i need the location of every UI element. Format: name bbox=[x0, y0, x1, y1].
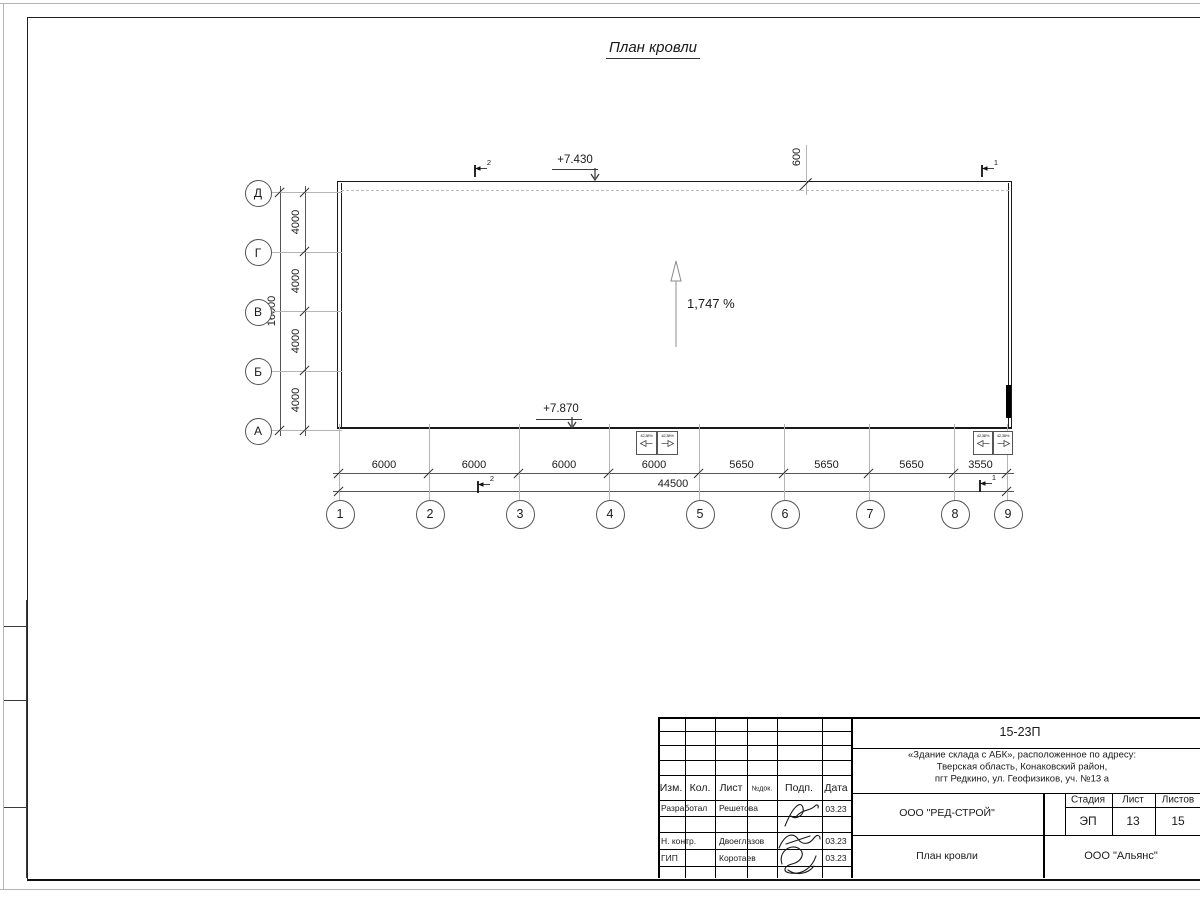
title-block-line bbox=[658, 800, 851, 801]
rev-header-list: Лист bbox=[720, 782, 743, 794]
section-marker: 1 bbox=[976, 476, 996, 494]
dim-label: 6000 bbox=[462, 459, 486, 471]
signature bbox=[774, 842, 820, 876]
title-block-line bbox=[658, 849, 851, 850]
rev-header-izm: Изм. bbox=[660, 782, 683, 794]
slope-label: 1,747 % bbox=[687, 296, 735, 311]
grid-extension-line bbox=[429, 424, 430, 500]
arrow-left-icon bbox=[639, 439, 654, 448]
filing-margin-line bbox=[26, 600, 27, 878]
title-block-line bbox=[851, 717, 853, 878]
title-block-line bbox=[851, 835, 1200, 836]
roof-parapet-left bbox=[341, 183, 342, 427]
stage-header: Стадия bbox=[1071, 795, 1105, 806]
roof-funnel: 42,38% bbox=[636, 431, 657, 455]
title-block-line bbox=[658, 731, 851, 732]
section-marker: 2 bbox=[471, 161, 491, 179]
dim-line-cols bbox=[333, 473, 1014, 474]
grid-extension-line bbox=[270, 371, 342, 372]
dim-label: 6000 bbox=[552, 459, 576, 471]
staff-name: Коротаев bbox=[719, 853, 756, 863]
roof-ladder-mark bbox=[1006, 385, 1011, 418]
roof-dashed-line bbox=[341, 190, 1009, 191]
axis-col-bubble: 1 bbox=[326, 500, 355, 529]
staff-date: 03.23 bbox=[825, 853, 846, 863]
grid-extension-line bbox=[270, 252, 342, 253]
dim-extension-line bbox=[806, 145, 807, 195]
funnel-slope-label: 42,38% bbox=[997, 432, 1009, 439]
title-block-line bbox=[822, 717, 823, 878]
title-block-line bbox=[685, 717, 686, 878]
drawing-title: План кровли bbox=[606, 39, 700, 59]
axis-col-bubble: 4 bbox=[596, 500, 625, 529]
title-block-line bbox=[1065, 807, 1200, 808]
rev-header-kol: Кол. bbox=[690, 782, 711, 794]
page-edge-top bbox=[0, 3, 1200, 4]
title-block-line bbox=[658, 866, 851, 867]
slope-arrow-icon bbox=[663, 259, 689, 351]
sheet-header: Лист bbox=[1122, 795, 1144, 806]
arrow-right-icon bbox=[660, 439, 675, 448]
section-number: 1 bbox=[992, 473, 996, 482]
roof-funnel: 42,38% bbox=[657, 431, 678, 455]
staff-date: 03.23 bbox=[825, 836, 846, 846]
dim-label: 5650 bbox=[814, 459, 838, 471]
title-block-line bbox=[658, 745, 851, 746]
axis-row-bubble: Б bbox=[245, 358, 272, 385]
dim-label: 6000 bbox=[372, 459, 396, 471]
axis-col-bubble: 6 bbox=[771, 500, 800, 529]
axis-col-bubble: 3 bbox=[506, 500, 535, 529]
staff-role: ГИП bbox=[661, 853, 678, 863]
title-block-border bbox=[658, 717, 1200, 719]
staff-name: Двоеглазов bbox=[719, 836, 764, 846]
section-number: 1 bbox=[994, 158, 998, 167]
stage-value: ЭП bbox=[1079, 814, 1096, 828]
dim-label: 4000 bbox=[290, 269, 302, 293]
grid-extension-line bbox=[699, 424, 700, 500]
axis-col-bubble: 7 bbox=[856, 500, 885, 529]
dim-label: 3550 bbox=[968, 459, 992, 471]
filing-margin-line bbox=[4, 626, 27, 627]
company: ООО "Альянс" bbox=[1084, 850, 1158, 862]
funnel-slope-label: 42,38% bbox=[977, 432, 989, 439]
funnel-slope-label: 42,38% bbox=[640, 432, 652, 439]
arrow-right-icon bbox=[996, 439, 1011, 448]
dim-line-cols-total bbox=[333, 491, 1014, 492]
grid-extension-line bbox=[270, 311, 342, 312]
title-block-line bbox=[1065, 793, 1066, 835]
page-edge-bottom bbox=[0, 889, 1200, 890]
roof-funnel: 42,38% bbox=[973, 431, 993, 455]
axis-col-bubble: 5 bbox=[686, 500, 715, 529]
axis-col-bubble: 8 bbox=[941, 500, 970, 529]
dim-label: 4000 bbox=[290, 329, 302, 353]
axis-col-bubble: 2 bbox=[416, 500, 445, 529]
section-marker: 1 bbox=[978, 161, 998, 179]
project-line: «Здание склада с АБК», расположенное по … bbox=[908, 750, 1136, 761]
section-number: 2 bbox=[490, 474, 494, 483]
grid-extension-line bbox=[519, 424, 520, 500]
staff-role: Н. контр. bbox=[661, 836, 696, 846]
grid-extension-line bbox=[784, 424, 785, 500]
arrow-down-icon bbox=[566, 417, 578, 430]
dim-label: 5650 bbox=[899, 459, 923, 471]
sheet-title: План кровли bbox=[916, 850, 978, 862]
roof-funnel: 42,38% bbox=[993, 431, 1013, 455]
staff-name: Решетова bbox=[719, 803, 758, 813]
title-block-line bbox=[851, 793, 1200, 794]
rev-header-ndok: №док. bbox=[752, 786, 773, 793]
grid-extension-line bbox=[869, 424, 870, 500]
title-block-line bbox=[715, 717, 716, 878]
section-marker: 2 bbox=[474, 477, 494, 495]
axis-col-bubble: 9 bbox=[994, 500, 1023, 529]
sheets-header: Листов bbox=[1162, 795, 1195, 806]
axis-row-bubble: А bbox=[245, 418, 272, 445]
filing-margin-line bbox=[4, 700, 27, 701]
rev-header-podp: Подп. bbox=[785, 782, 813, 794]
doc-code: 15-23П bbox=[1000, 725, 1041, 739]
sheet-count: 15 bbox=[1171, 814, 1184, 828]
title-block-line bbox=[658, 832, 851, 833]
drawing-sheet: План кровли 1,747 % +7.430 +7.870 600 16… bbox=[0, 0, 1200, 900]
dim-label: 4000 bbox=[290, 210, 302, 234]
title-block-line bbox=[658, 760, 851, 761]
signature bbox=[779, 796, 821, 832]
arrow-left-icon bbox=[976, 439, 991, 448]
grid-extension-line bbox=[609, 424, 610, 500]
rev-header-data: Дата bbox=[824, 782, 847, 794]
parapet-offset-label: 600 bbox=[791, 148, 803, 166]
dim-label: 6000 bbox=[642, 459, 666, 471]
dim-total-bottom-label: 44500 bbox=[658, 478, 689, 490]
project-line: Тверская область, Конаковский район, bbox=[937, 762, 1108, 773]
axis-row-bubble: Д bbox=[245, 180, 272, 207]
page-edge-left bbox=[3, 3, 4, 890]
project-line: пгт Редкино, ул. Геофизиков, уч. №13 а bbox=[935, 774, 1109, 785]
arrow-down-icon bbox=[589, 168, 601, 182]
title-block-border bbox=[658, 717, 660, 878]
title-block-line bbox=[658, 775, 851, 776]
axis-row-bubble: Г bbox=[245, 239, 272, 266]
dim-label: 4000 bbox=[290, 388, 302, 412]
grid-extension-line bbox=[954, 424, 955, 500]
filing-margin-line bbox=[4, 807, 27, 808]
staff-role: Разработал bbox=[661, 803, 707, 813]
section-number: 2 bbox=[487, 158, 491, 167]
elevation-mark-bottom: +7.870 bbox=[543, 403, 579, 415]
organization: ООО "РЕД-СТРОЙ" bbox=[899, 807, 995, 819]
title-block-line bbox=[1112, 793, 1113, 835]
title-block-line bbox=[1155, 793, 1156, 835]
sheet-number: 13 bbox=[1126, 814, 1139, 828]
dim-label: 5650 bbox=[729, 459, 753, 471]
elevation-mark-top: +7.430 bbox=[557, 154, 593, 166]
funnel-slope-label: 42,38% bbox=[661, 432, 673, 439]
axis-row-bubble: В bbox=[245, 299, 272, 326]
staff-date: 03.23 bbox=[825, 804, 846, 814]
title-block-line bbox=[658, 816, 851, 817]
